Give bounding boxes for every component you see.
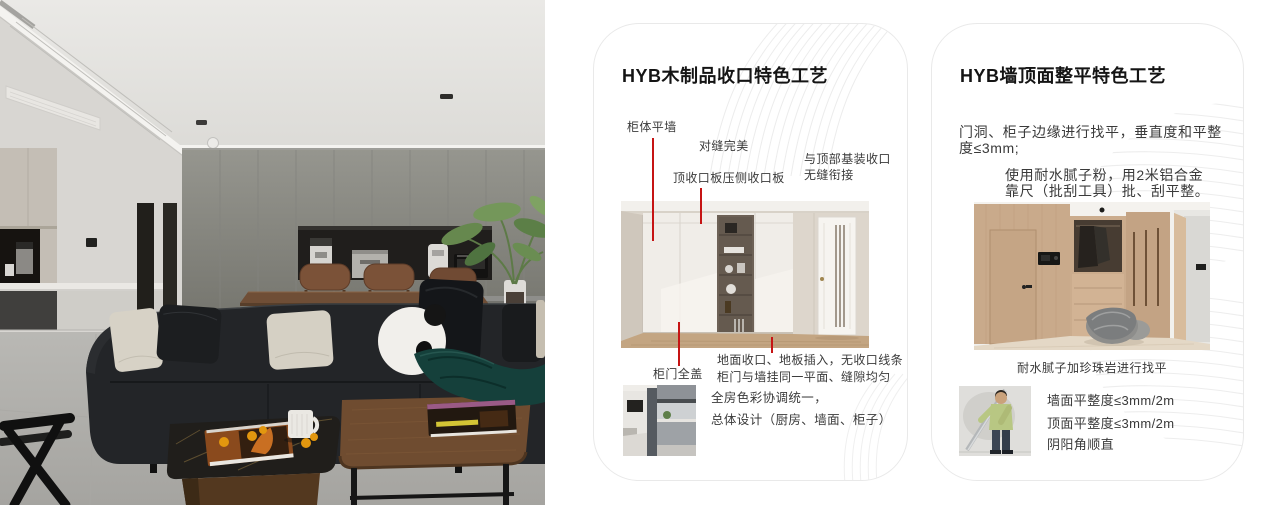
smoke-detector: [208, 138, 219, 149]
card-woodwork-craft: HYB木制品收口特色工艺 柜体平墙 对缝完美 顶收口板压侧收口板 与顶部基装收口…: [593, 23, 908, 481]
label-full-cover-door: 柜门全盖: [653, 367, 703, 383]
label-perfect-seam: 对缝完美: [699, 139, 749, 155]
promo-banner: HYB木制品收口特色工艺 柜体平墙 对缝完美 顶收口板压侧收口板 与顶部基装收口…: [0, 0, 1280, 505]
summary-line-2: 总体设计（厨房、墙面、柜子）: [711, 413, 892, 429]
card-title-wall-leveling: HYB墙顶面整平特色工艺: [960, 62, 1166, 88]
label-ceiling-joint: 与顶部基装收口 无缝衔接: [804, 152, 891, 183]
light-switch: [86, 238, 97, 247]
hallway-wardrobe-image: [974, 202, 1210, 350]
annotation-line: [678, 322, 680, 366]
annotation-line: [652, 138, 654, 241]
closing-notes: 地面收口、地板插入，无收口线条 柜门与墙挂同一平面、缝隙均匀: [717, 352, 903, 385]
living-room-illustration: [0, 0, 545, 505]
label-top-closing-panel: 顶收口板压侧收口板: [673, 171, 785, 187]
metric-corners-straight: 阴阳角顺直: [1047, 434, 1114, 453]
recessed-light: [440, 94, 453, 99]
leveling-paragraph-1: 门洞、柜子边缘进行找平，垂直度和平整 度≤3mm;: [959, 125, 1222, 156]
leveling-paragraph-2: 使用耐水腻子粉，用2米铝合金 靠尺（批刮工具）批、刮平整。: [1005, 167, 1209, 199]
living-room-photo: [0, 0, 545, 505]
card-wall-leveling-craft: HYB墙顶面整平特色工艺 门洞、柜子边缘进行找平，垂直度和平整 度≤3mm; 使…: [931, 23, 1244, 481]
dark-door: [137, 203, 154, 311]
room-thumbnail-image: [623, 385, 696, 456]
metric-wall-flatness: 墙面平整度≤3mm/2m: [1047, 390, 1175, 409]
summary-line-1: 全房色彩协调统一，: [711, 391, 827, 407]
annotation-line: [700, 188, 702, 224]
annotation-line: [771, 337, 773, 353]
label-cabinet-flush-wall: 柜体平墙: [627, 120, 677, 136]
metric-ceiling-flatness: 顶面平整度≤3mm/2m: [1047, 413, 1175, 432]
magazine-walnut-table: [427, 400, 517, 438]
worker-thumbnail-image: [959, 386, 1031, 456]
image-caption: 耐水腻子加珍珠岩进行找平: [974, 359, 1210, 376]
card-title-woodwork: HYB木制品收口特色工艺: [622, 62, 828, 88]
cabinet-closeup-image: [621, 201, 869, 348]
